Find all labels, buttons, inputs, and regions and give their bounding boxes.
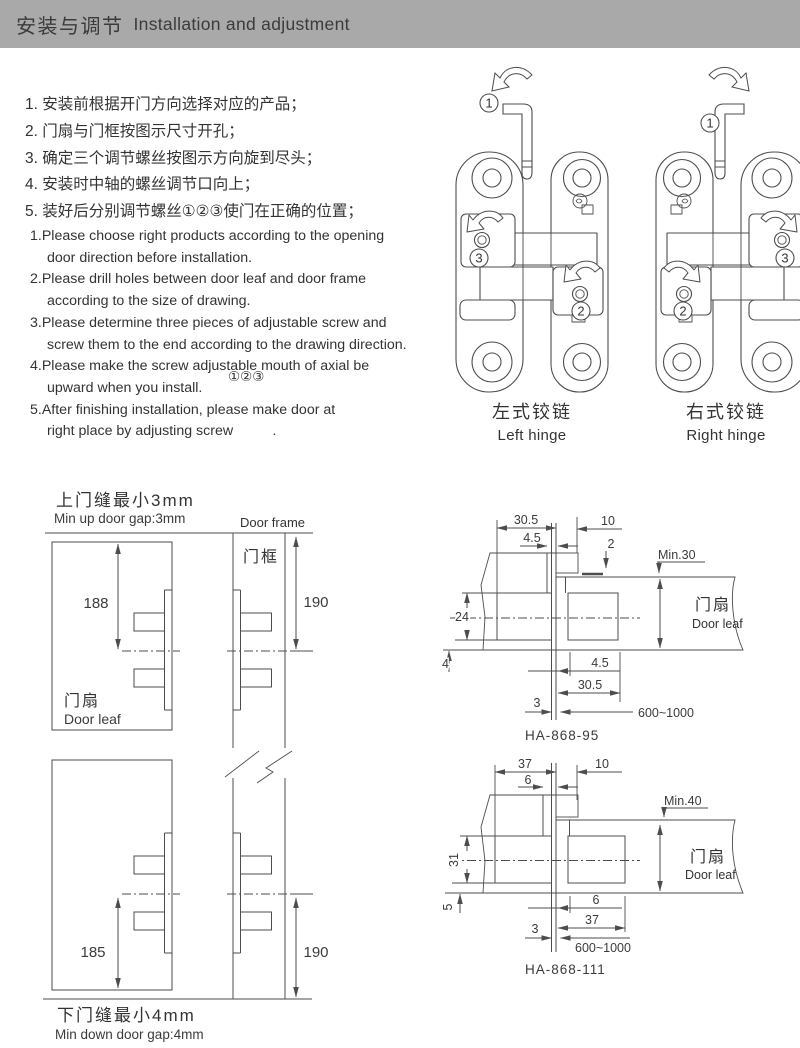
- screw1-number: 1: [706, 116, 713, 131]
- dim-gap: 3: [532, 922, 539, 936]
- dim-depth-top: 37: [518, 757, 532, 771]
- left-hinge-figure: 1 3 2: [448, 58, 624, 398]
- dim-door-width: 600~1000: [575, 941, 631, 955]
- dim-min-thickness: Min.40: [664, 794, 702, 808]
- dim-depth-top: 30.5: [514, 513, 538, 527]
- instructions-chinese: 1. 安装前根据开门方向选择对应的产品； 2. 门扇与门框按图示尺寸开孔； 3.…: [25, 92, 450, 226]
- model-name-111: HA-868-111: [525, 962, 606, 977]
- door-leaf-label-cn: 门扇: [64, 692, 100, 710]
- screw2-number: 2: [679, 304, 686, 319]
- dim-door-width: 600~1000: [638, 706, 694, 720]
- dim-190-top: 190: [303, 594, 328, 611]
- en-step-line: right place by adjusting screw .: [30, 421, 460, 443]
- gap-footer-cn: 下门缝最小4mm: [57, 1006, 196, 1025]
- dim-188: 188: [83, 595, 108, 612]
- left-hinge-label-en: Left hinge: [444, 427, 620, 444]
- page-header: 安装与调节 Installation and adjustment: [0, 0, 800, 48]
- page-title-cn: 安装与调节: [16, 10, 124, 39]
- en-step-line: screw them to the end according to the d…: [30, 335, 460, 357]
- dim-slot-bottom: 6: [593, 893, 600, 907]
- dim-edge: 10: [601, 514, 615, 528]
- leaf-label-en: Door leaf: [685, 868, 736, 882]
- en-step-line: door direction before installation.: [30, 248, 460, 270]
- door-leaf-label-en: Door leaf: [64, 711, 121, 727]
- door-frame-label-cn: 门框: [243, 548, 279, 566]
- dim-body-height: 31: [447, 853, 461, 867]
- dim-gap: 3: [534, 696, 541, 710]
- en-step-line: 2.Please drill holes between door leaf a…: [30, 269, 460, 291]
- section-ha-868-111: 37 6 10 Min.40 31 5 6 37 3 600~1000 门扇 D…: [440, 755, 800, 1000]
- dim-body-height: 24: [455, 610, 469, 624]
- en-step-line: 3.Please determine three pieces of adjus…: [30, 313, 460, 335]
- dim-min-thickness: Min.30: [658, 548, 696, 562]
- gap-footer-en: Min down door gap:4mm: [55, 1027, 204, 1042]
- dim-depth-bottom: 30.5: [578, 678, 602, 692]
- dim-185: 185: [80, 944, 105, 961]
- dim-190-bottom: 190: [303, 944, 328, 961]
- leaf-label-cn: 门扇: [695, 596, 731, 614]
- dim-slot-bottom: 4.5: [591, 656, 608, 670]
- en-step-line: 5.After finishing installation, please m…: [30, 400, 460, 422]
- cn-step-3: 3. 确定三个调节螺丝按图示方向旋到尽头；: [25, 146, 450, 173]
- gap-title-cn: 上门缝最小3mm: [56, 491, 195, 510]
- dim-slot-top: 4.5: [523, 531, 540, 545]
- dim-wall: 5: [441, 903, 455, 910]
- rotate-arrow-icon: [492, 67, 532, 91]
- door-gap-diagram: 上门缝最小3mm Min up door gap:3mm Door frame …: [35, 485, 335, 1048]
- screw3-number: 3: [475, 251, 482, 266]
- cn-step-5: 5. 装好后分别调节螺丝①②③使门在正确的位置；: [25, 199, 450, 226]
- leaf-label-en: Door leaf: [692, 617, 743, 631]
- door-frame-label-en: Door frame: [240, 515, 305, 530]
- instructions-english: 1.Please choose right products according…: [30, 226, 460, 443]
- right-hinge-label-en: Right hinge: [638, 427, 800, 444]
- model-name-95: HA-868-95: [525, 728, 599, 743]
- right-hinge-figure: 1 3 2: [640, 58, 800, 398]
- screw2-number: 2: [577, 304, 584, 319]
- allen-key-icon: [715, 104, 744, 179]
- dim-edge: 10: [595, 757, 609, 771]
- leaf-label-cn: 门扇: [690, 848, 726, 866]
- dim-wall: 4: [442, 657, 449, 671]
- manual-page: 安装与调节 Installation and adjustment 1. 安装前…: [0, 0, 800, 1048]
- right-hinge-label: 右式铰链 Right hinge: [638, 398, 800, 444]
- cn-step-1: 1. 安装前根据开门方向选择对应的产品；: [25, 92, 450, 119]
- cn-step-2: 2. 门扇与门框按图示尺寸开孔；: [25, 119, 450, 146]
- right-hinge-label-cn: 右式铰链: [638, 398, 800, 424]
- dim-offset: 2: [608, 537, 615, 551]
- left-hinge-label-cn: 左式铰链: [444, 398, 620, 424]
- screw1-number: 1: [485, 96, 492, 111]
- screw3-number: 3: [781, 251, 788, 266]
- left-hinge-label: 左式铰链 Left hinge: [444, 398, 620, 444]
- en-step-line: according to the size of drawing.: [30, 291, 460, 313]
- page-title-en: Installation and adjustment: [134, 14, 350, 35]
- section-ha-868-95: 30.5 4.5 10 2 Min.30 24 4 4.5 30.5 3 600…: [440, 505, 800, 755]
- gap-title-en: Min up door gap:3mm: [54, 511, 185, 526]
- cn-step-4: 4. 安装时中轴的螺丝调节口向上；: [25, 172, 450, 199]
- adjust-screw-marks: ①②③: [228, 369, 264, 385]
- dim-depth-bottom: 37: [585, 913, 599, 927]
- en-step-line: 1.Please choose right products according…: [30, 226, 460, 248]
- rotate-arrow-icon: [709, 67, 749, 91]
- dim-slot-top: 6: [525, 773, 532, 787]
